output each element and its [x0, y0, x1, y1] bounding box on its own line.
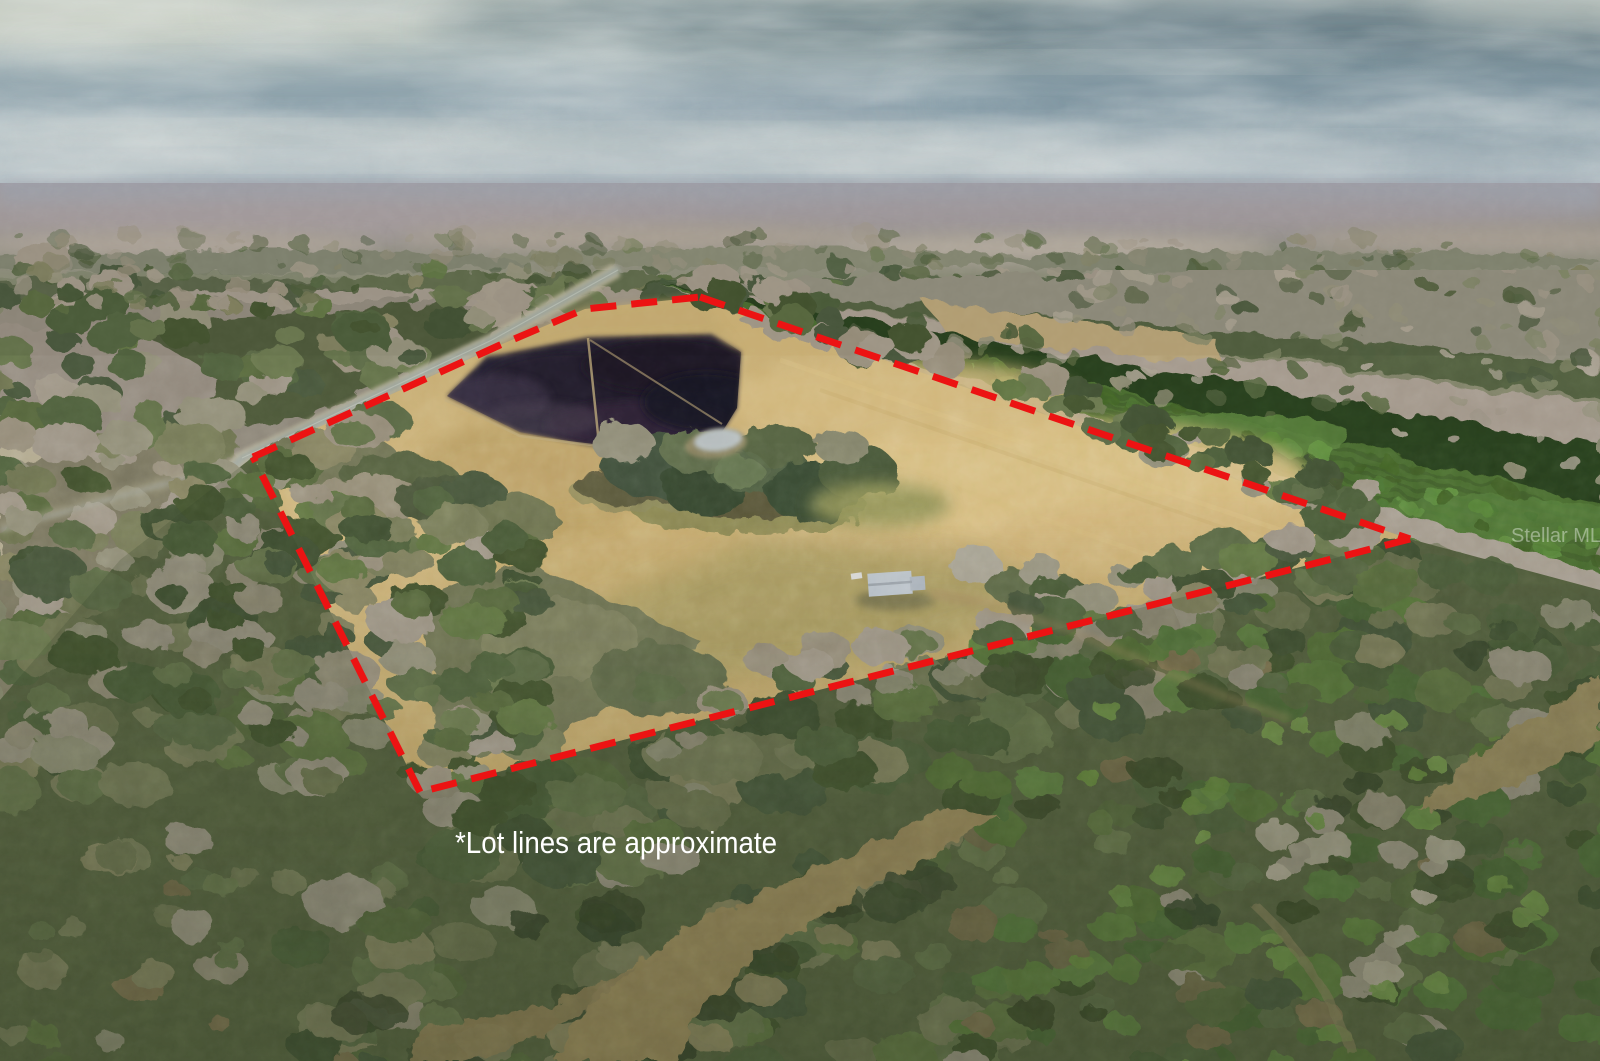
svg-text:*Lot lines are approximate: *Lot lines are approximate [455, 825, 777, 860]
svg-text:Stellar MLS: Stellar MLS [1511, 525, 1600, 547]
